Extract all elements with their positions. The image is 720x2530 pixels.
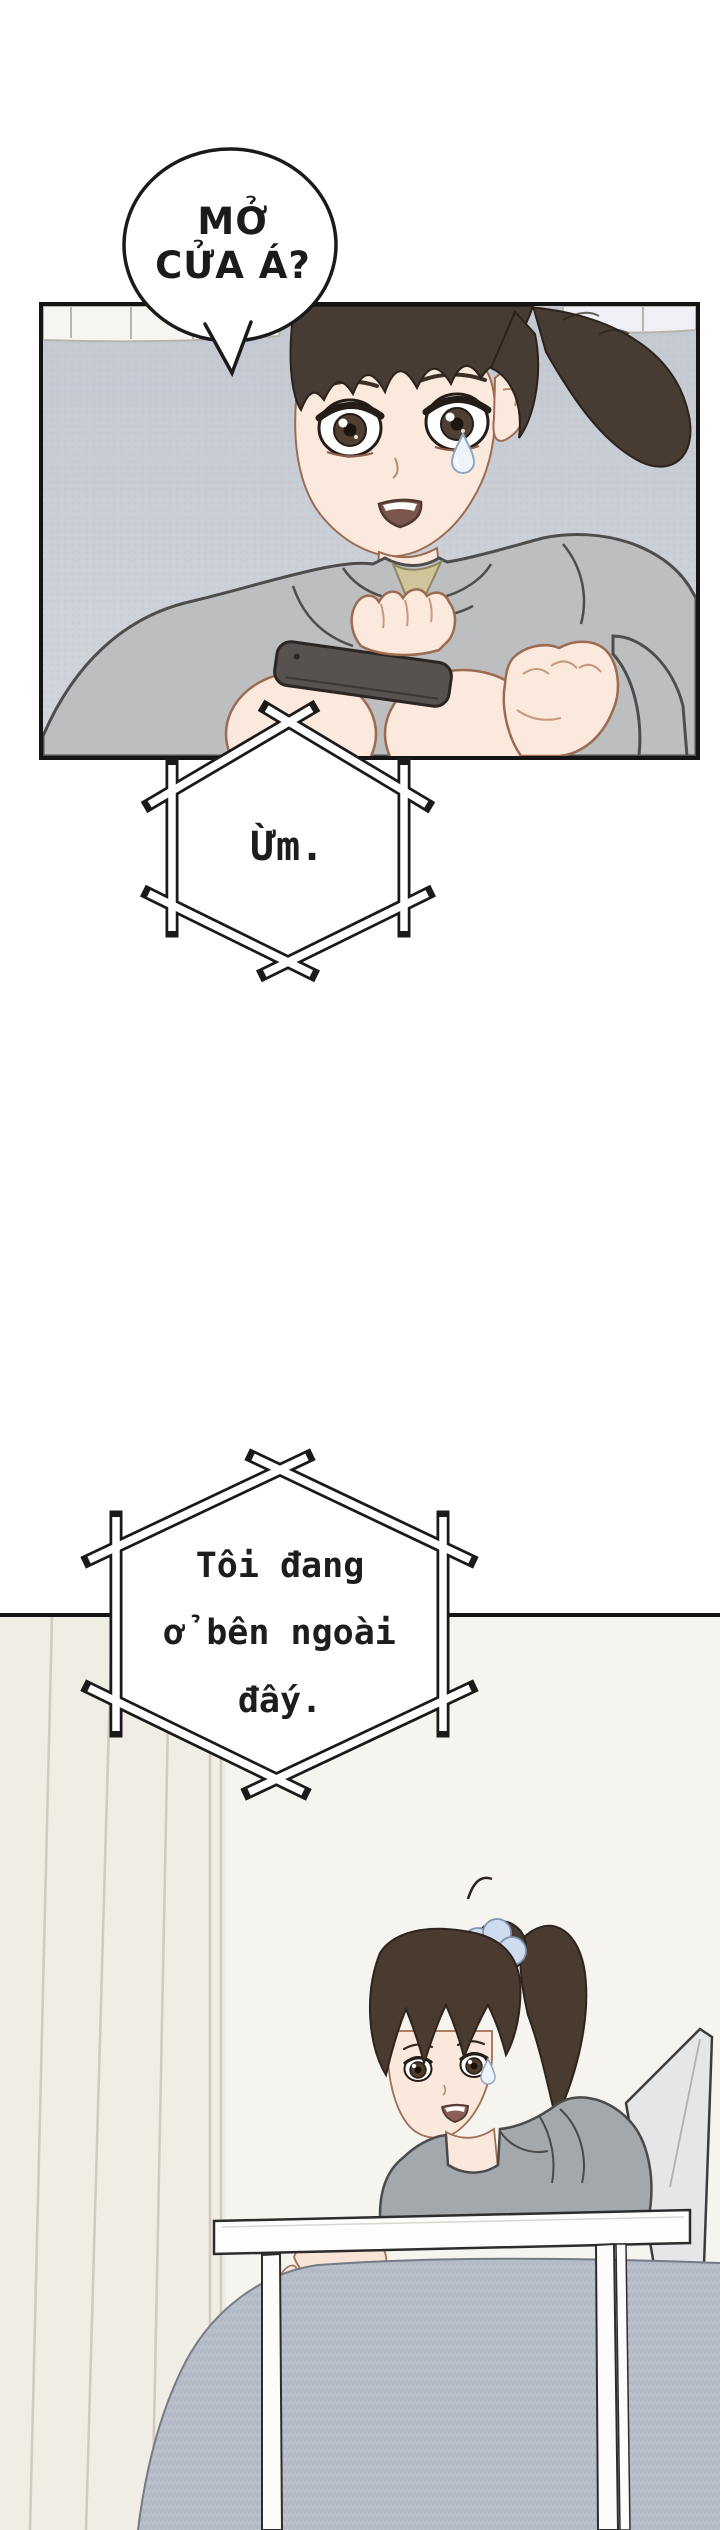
hex-outside-line-3: đấy. [238, 1681, 322, 1721]
shout-line-1: MỞ [197, 195, 268, 243]
hex-um-text: Ừm. [252, 822, 324, 870]
hex-bubble-um: Ừm. [120, 670, 460, 1000]
speech-bubble-shout: MỞ CỬA Á? [115, 142, 355, 377]
hex-bubble-outside: Tôi đang ở bên ngoài đấy. [75, 1420, 485, 1820]
hand-left [352, 589, 455, 655]
shout-line-2: CỬA Á? [155, 239, 311, 287]
hex-outside-line-2: ở bên ngoài [164, 1613, 396, 1653]
comic-page: MỞ CỬA Á? Ừm. [0, 0, 720, 2530]
hex-outside-line-1: Tôi đang [196, 1546, 365, 1586]
